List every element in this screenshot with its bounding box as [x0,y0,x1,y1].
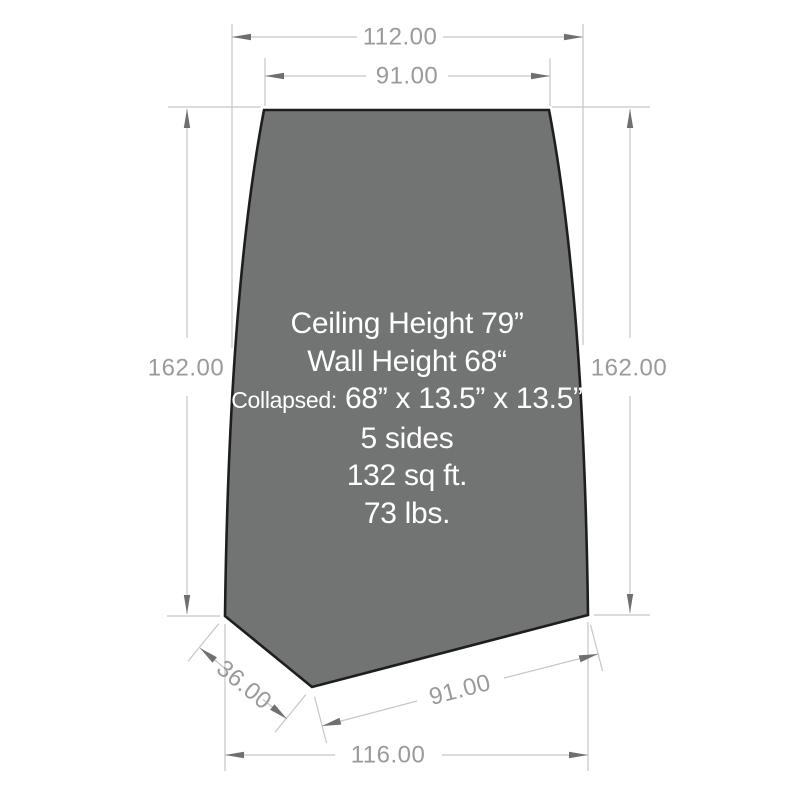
panel-spec-text: Ceiling Height 79” Wall Height 68“ Colla… [231,305,583,532]
arrow-right-icon [569,752,588,758]
dim-top-edge-label: 91.00 [376,63,439,90]
weight-text: 73 lbs. [231,495,583,533]
sides-text: 5 sides [231,420,583,458]
arrow-left-icon [265,73,284,79]
arrow-up-icon [184,109,190,128]
dim-top-width-label: 112.00 [363,24,438,51]
dim-bottom-left-edge-label: 36.00 [211,655,277,715]
extension-line [315,697,327,743]
extension-line [591,625,603,671]
dim-right-height-label: 162.00 [591,355,667,382]
arrow-left-icon [225,752,244,758]
collapsed-value: 68” x 13.5” x 13.5” [345,382,583,415]
arrow-down-icon [627,594,633,613]
tent-panel-dimension-diagram: 112.00 91.00 162.00 162.00 116.00 36.00 … [0,0,800,800]
collapsed-label: Collapsed: [231,387,337,413]
dim-bottom-width-label: 116.00 [351,742,426,769]
arrow-right-icon [564,34,583,40]
dim-bottom-right-edge-label: 91.00 [426,669,493,711]
arrow-left-icon [232,34,251,40]
extension-line [188,624,219,662]
area-text: 132 sq ft. [231,457,583,495]
collapsed-size-text: Collapsed: 68” x 13.5” x 13.5” [231,380,583,420]
arrow-down-right-icon [270,704,287,719]
arrow-up-icon [627,109,633,128]
arrow-down-left-icon [322,718,341,726]
wall-height-text: Wall Height 68“ [231,343,583,381]
ceiling-height-text: Ceiling Height 79” [231,305,583,343]
arrow-down-icon [184,595,190,614]
arrow-right-icon [531,73,550,79]
dim-left-height-label: 162.00 [148,355,224,382]
